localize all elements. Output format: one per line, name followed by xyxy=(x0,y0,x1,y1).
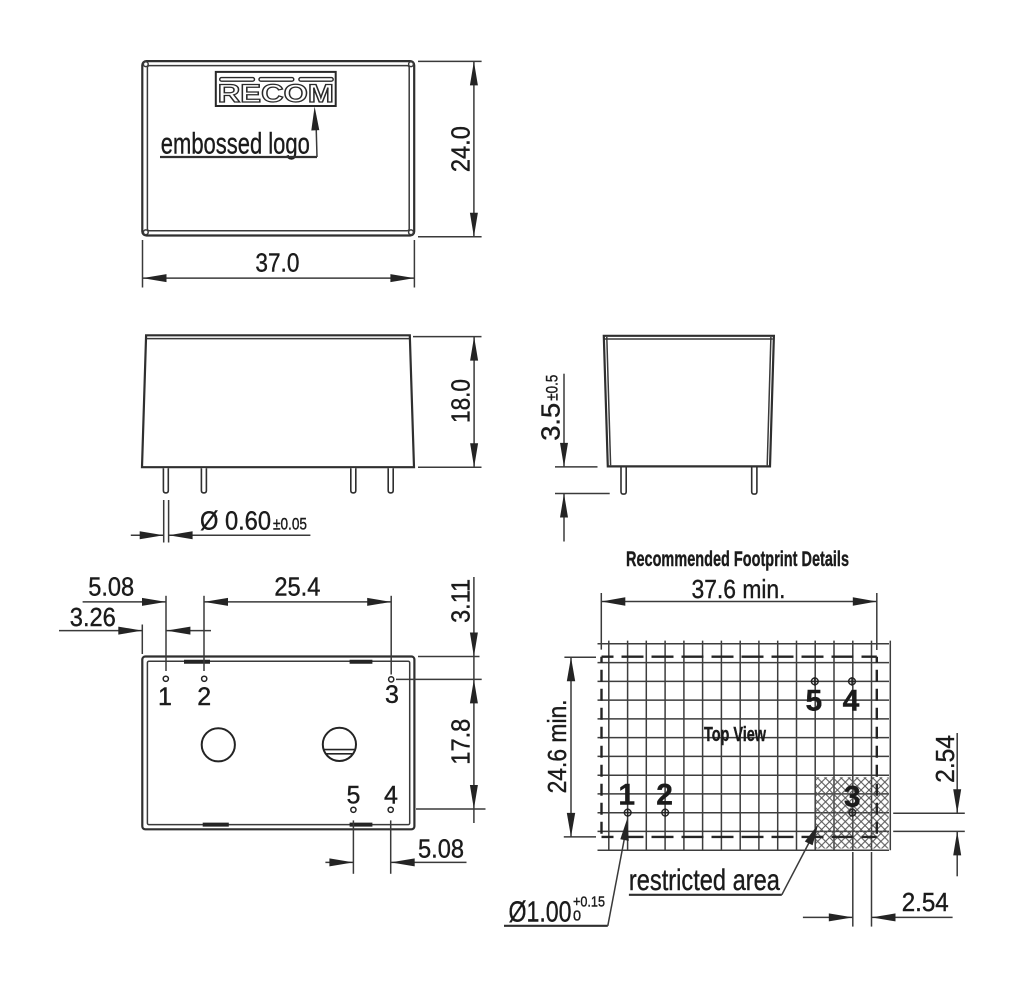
svg-text:5: 5 xyxy=(346,782,360,810)
svg-text:3.11: 3.11 xyxy=(446,579,476,623)
svg-text:Ø 0.60: Ø 0.60 xyxy=(200,506,271,536)
svg-text:Top View: Top View xyxy=(704,724,766,746)
svg-text:1: 1 xyxy=(618,778,635,811)
svg-text:3: 3 xyxy=(844,780,861,813)
svg-text:5.08: 5.08 xyxy=(418,834,464,864)
svg-text:RECOM: RECOM xyxy=(218,80,334,108)
svg-text:2.54: 2.54 xyxy=(930,735,960,783)
svg-text:3.5: 3.5 xyxy=(536,403,566,441)
svg-text:5.08: 5.08 xyxy=(88,571,134,601)
svg-text:18.0: 18.0 xyxy=(446,379,476,423)
svg-text:Ø1.00: Ø1.00 xyxy=(509,897,572,929)
svg-text:2.54: 2.54 xyxy=(902,887,949,917)
svg-text:embossed logo: embossed logo xyxy=(161,127,310,160)
svg-text:24.0: 24.0 xyxy=(446,126,476,172)
svg-text:25.4: 25.4 xyxy=(274,571,320,601)
svg-text:restricted area: restricted area xyxy=(629,864,780,897)
svg-text:Recommended Footprint Details: Recommended Footprint Details xyxy=(626,548,849,571)
svg-text:3: 3 xyxy=(385,681,399,709)
svg-text:0: 0 xyxy=(573,908,581,924)
svg-text:37.6 min.: 37.6 min. xyxy=(692,574,786,604)
svg-text:4: 4 xyxy=(843,685,860,718)
svg-text:±0.5: ±0.5 xyxy=(544,375,562,401)
svg-text:17.8: 17.8 xyxy=(446,719,476,765)
svg-text:5: 5 xyxy=(806,685,823,718)
svg-text:2: 2 xyxy=(197,683,211,711)
svg-text:3.26: 3.26 xyxy=(70,602,116,632)
svg-text:2: 2 xyxy=(656,778,673,811)
svg-text:4: 4 xyxy=(384,782,398,810)
svg-text:±0.05: ±0.05 xyxy=(273,516,307,534)
svg-text:37.0: 37.0 xyxy=(255,248,299,278)
svg-text:1: 1 xyxy=(158,683,172,711)
svg-text:24.6 min.: 24.6 min. xyxy=(542,699,572,793)
